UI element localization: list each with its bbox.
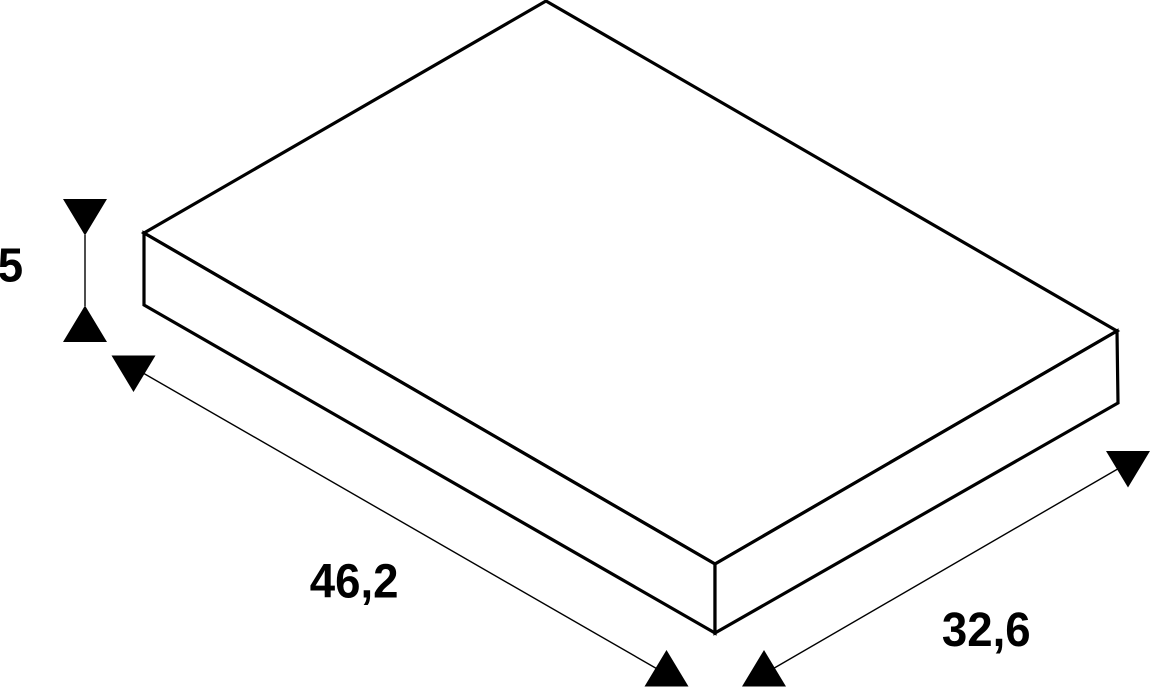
svg-text:32,6: 32,6: [942, 602, 1031, 657]
svg-text:5: 5: [0, 237, 23, 292]
svg-text:46,2: 46,2: [310, 553, 399, 608]
